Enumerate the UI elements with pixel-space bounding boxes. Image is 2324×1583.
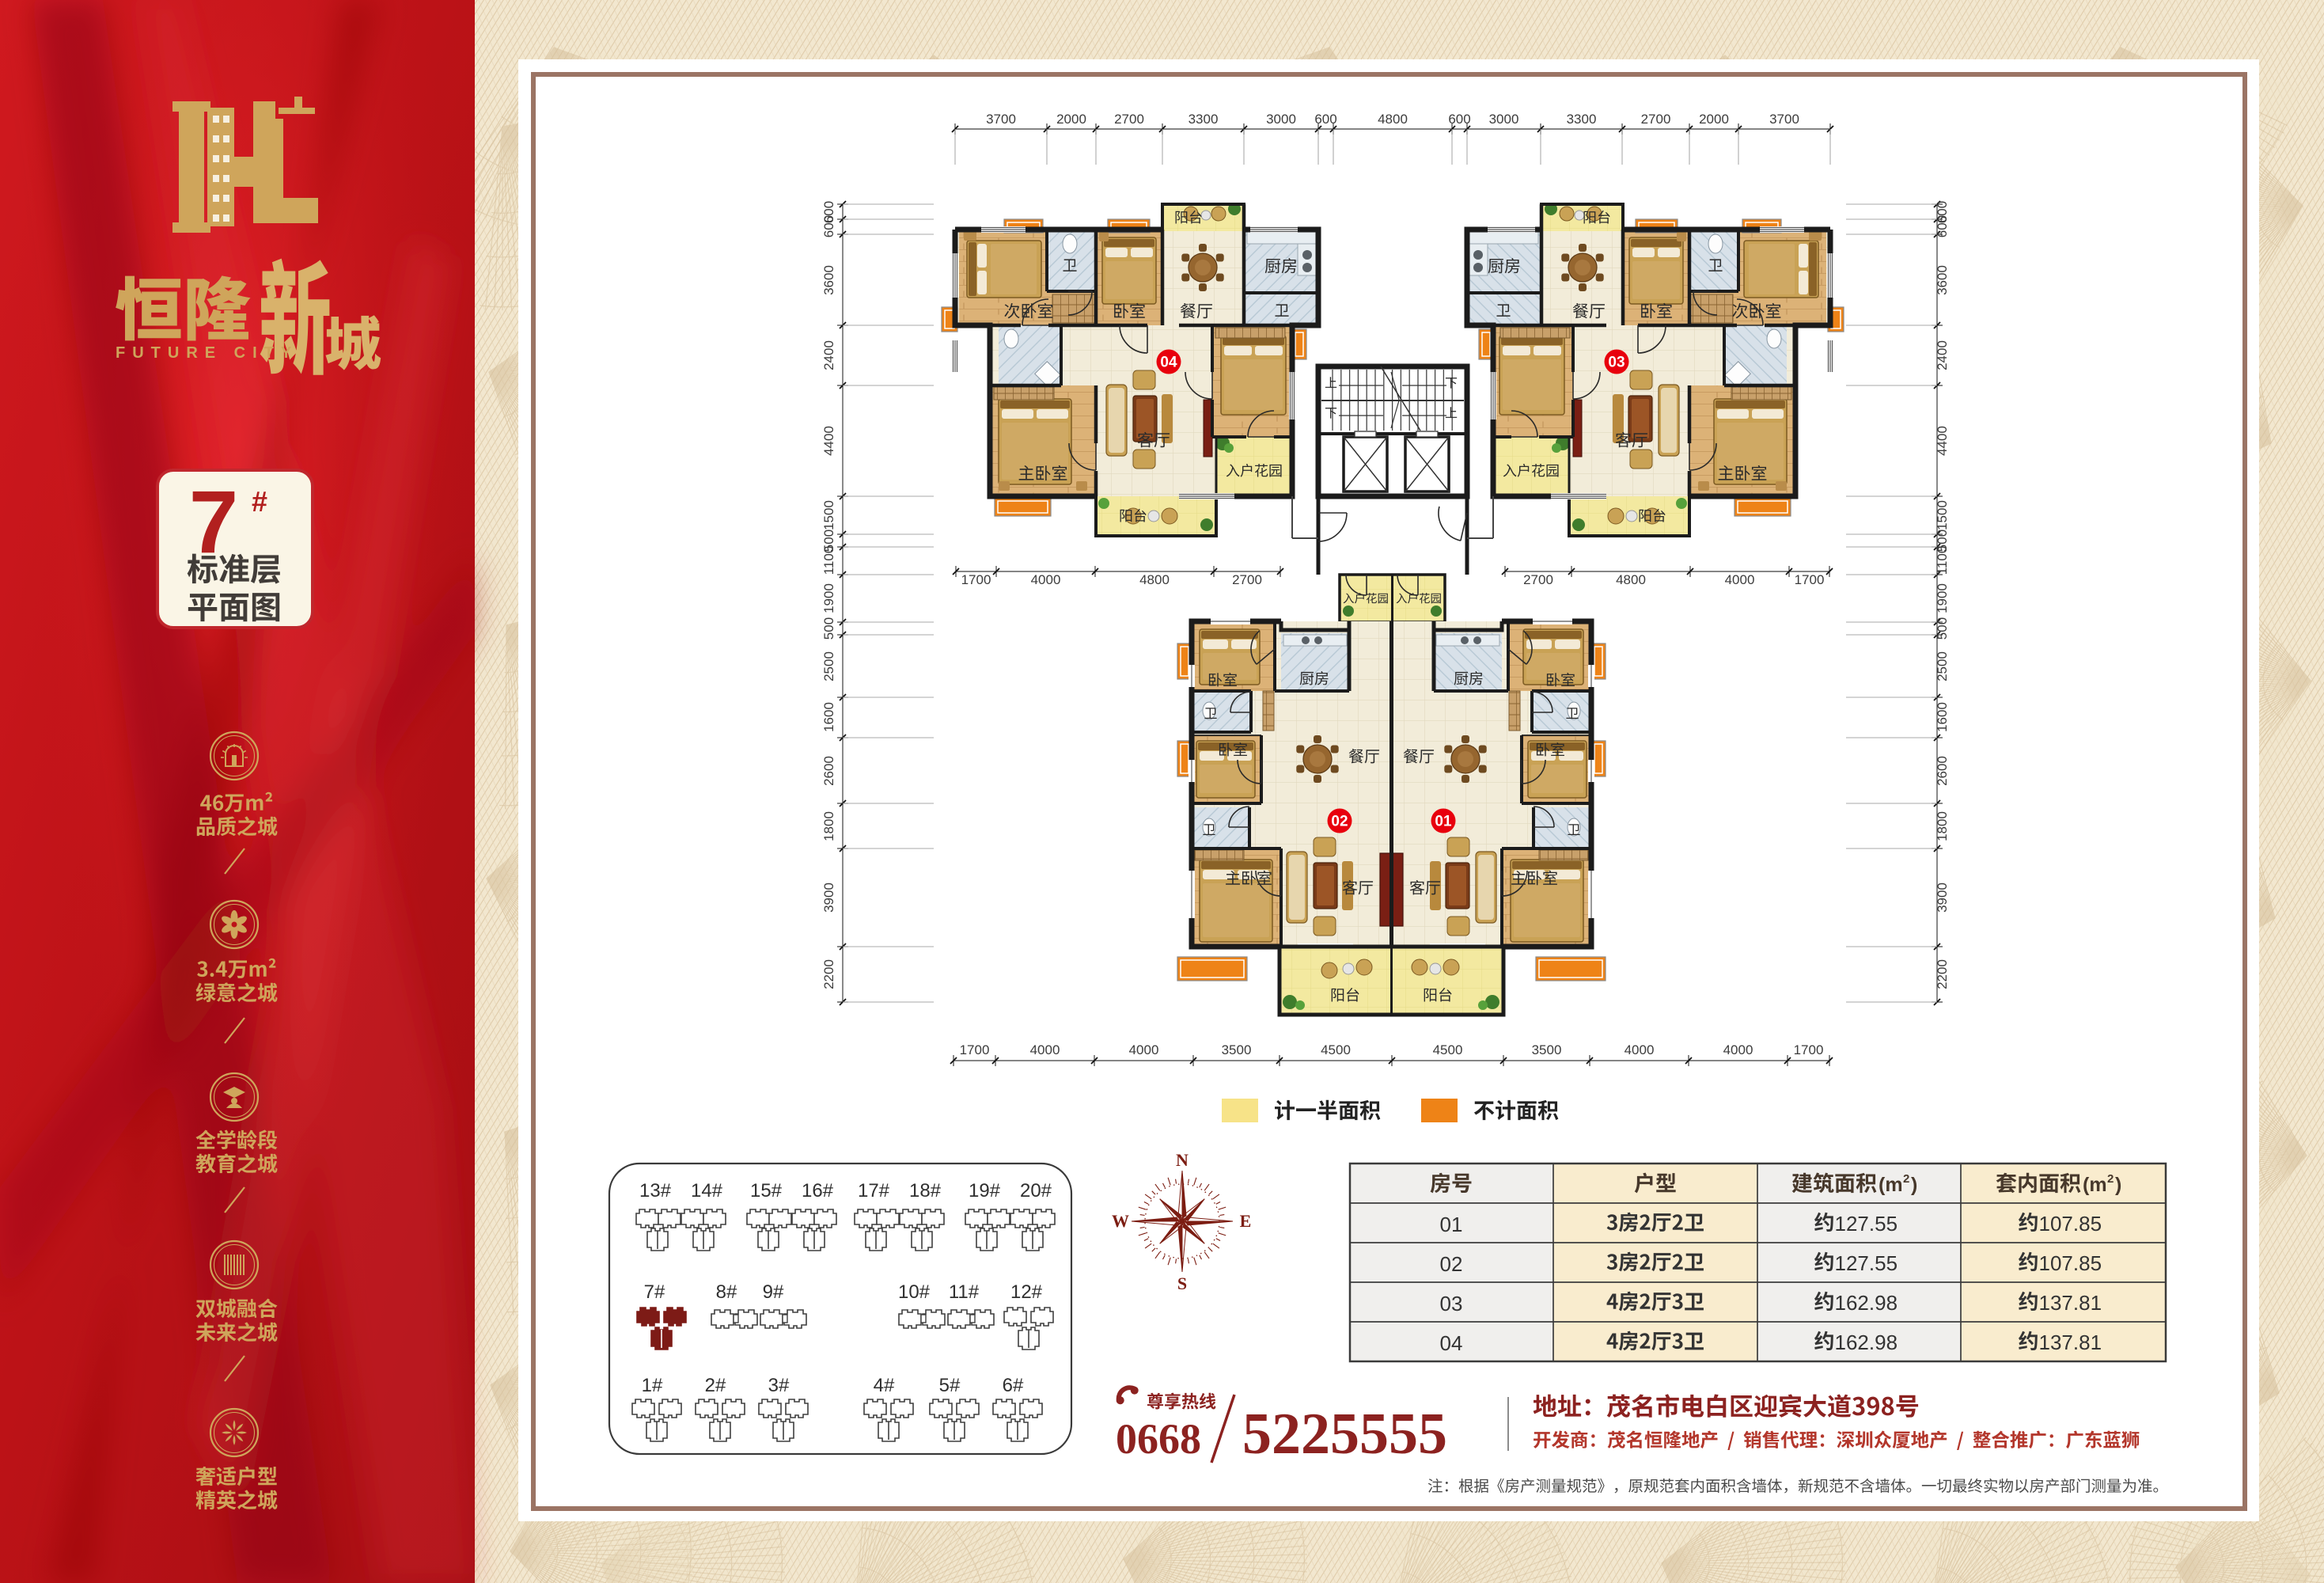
svg-text:11#: 11#	[949, 1281, 980, 1303]
svg-text:8#: 8#	[716, 1281, 737, 1303]
svg-text:4800: 4800	[1616, 572, 1646, 587]
svg-text:137.81: 137.81	[2039, 1291, 2102, 1315]
svg-text:1700: 1700	[1795, 572, 1825, 587]
svg-text:107.85: 107.85	[2039, 1212, 2102, 1236]
svg-text:7#: 7#	[644, 1281, 665, 1303]
svg-text:(m: (m	[2083, 1174, 2107, 1196]
svg-text:18#: 18#	[909, 1180, 942, 1201]
svg-text:162.98: 162.98	[1835, 1291, 1898, 1315]
svg-text:3500: 3500	[1222, 1042, 1252, 1057]
svg-text:1700: 1700	[961, 572, 991, 587]
svg-text:1100: 1100	[821, 546, 836, 575]
svg-text:17#: 17#	[858, 1180, 890, 1201]
svg-text:N: N	[1176, 1150, 1189, 1170]
svg-text:1500: 1500	[1935, 500, 1950, 530]
svg-text:2500: 2500	[1935, 651, 1950, 681]
svg-text:3000: 3000	[1489, 112, 1519, 127]
svg-text:(m: (m	[1879, 1174, 1903, 1196]
svg-text:20#: 20#	[1020, 1180, 1052, 1201]
svg-text:4400: 4400	[1935, 426, 1950, 456]
svg-text:2: 2	[2107, 1172, 2114, 1186]
svg-text:15#: 15#	[750, 1180, 783, 1201]
svg-text:2: 2	[1903, 1172, 1909, 1186]
svg-text:4500: 4500	[1321, 1042, 1351, 1057]
svg-text:0668: 0668	[1116, 1415, 1201, 1463]
svg-text:): )	[2115, 1174, 2121, 1196]
svg-text:2200: 2200	[1935, 959, 1950, 989]
svg-text:2400: 2400	[1935, 340, 1950, 370]
svg-text:1500: 1500	[821, 500, 836, 530]
svg-text:4#: 4#	[874, 1375, 895, 1396]
svg-text:4000: 4000	[1031, 572, 1061, 587]
svg-text:2200: 2200	[821, 959, 836, 989]
svg-text:4000: 4000	[1129, 1042, 1159, 1057]
svg-text:03: 03	[1440, 1292, 1463, 1315]
svg-text:13#: 13#	[639, 1180, 672, 1201]
svg-text:600: 600	[1314, 112, 1336, 127]
svg-text:1900: 1900	[821, 583, 836, 613]
svg-text:4800: 4800	[1139, 572, 1170, 587]
svg-text:4400: 4400	[821, 426, 836, 456]
svg-text:16#: 16#	[802, 1180, 834, 1201]
svg-text:500: 500	[821, 617, 836, 640]
svg-text:01: 01	[1440, 1213, 1463, 1236]
svg-text:5225555: 5225555	[1242, 1402, 1447, 1467]
svg-text:600: 600	[1935, 215, 1950, 237]
svg-text:3700: 3700	[986, 112, 1016, 127]
svg-text:W: W	[1112, 1211, 1129, 1231]
svg-text:#: #	[252, 485, 267, 518]
svg-text:127.55: 127.55	[1835, 1251, 1898, 1275]
svg-text:4000: 4000	[1723, 1042, 1753, 1057]
svg-text:127.55: 127.55	[1835, 1212, 1898, 1236]
svg-text:3600: 3600	[821, 265, 836, 295]
svg-text:E: E	[1240, 1211, 1252, 1231]
svg-text:3900: 3900	[821, 883, 836, 913]
svg-text:4000: 4000	[1625, 1042, 1655, 1057]
svg-text:1100: 1100	[1935, 546, 1950, 575]
svg-text:1600: 1600	[1935, 702, 1950, 732]
svg-text:2500: 2500	[821, 651, 836, 681]
svg-text:1700: 1700	[960, 1042, 990, 1057]
svg-text:1#: 1#	[642, 1375, 663, 1396]
svg-text:600: 600	[1448, 112, 1470, 127]
svg-text:2700: 2700	[1114, 112, 1144, 127]
svg-text:3#: 3#	[768, 1375, 790, 1396]
svg-text:4800: 4800	[1378, 112, 1408, 127]
svg-text:10#: 10#	[898, 1281, 931, 1303]
svg-text:3900: 3900	[1935, 883, 1950, 913]
svg-text:5#: 5#	[939, 1375, 961, 1396]
svg-text:1800: 1800	[1935, 811, 1950, 841]
svg-text:4500: 4500	[1433, 1042, 1463, 1057]
svg-text:3300: 3300	[1189, 112, 1219, 127]
svg-text:04: 04	[1440, 1331, 1463, 1355]
svg-text:2600: 2600	[821, 756, 836, 786]
svg-text:): )	[1911, 1174, 1917, 1196]
svg-text:4000: 4000	[1725, 572, 1755, 587]
svg-text:2700: 2700	[1523, 572, 1553, 587]
svg-text:12#: 12#	[1010, 1281, 1043, 1303]
svg-text:01: 01	[1435, 814, 1452, 830]
svg-text:1900: 1900	[1935, 583, 1950, 613]
svg-text:19#: 19#	[969, 1180, 1001, 1201]
svg-text:107.85: 107.85	[2039, 1251, 2102, 1275]
svg-text:14#: 14#	[691, 1180, 723, 1201]
svg-text:02: 02	[1331, 814, 1348, 830]
svg-text:600: 600	[821, 215, 836, 237]
svg-text:2#: 2#	[705, 1375, 726, 1396]
svg-text:2000: 2000	[1699, 112, 1729, 127]
svg-text:3600: 3600	[1935, 265, 1950, 295]
svg-text:1600: 1600	[821, 702, 836, 732]
svg-text:1800: 1800	[821, 811, 836, 841]
svg-text:3500: 3500	[1532, 1042, 1562, 1057]
svg-text:2700: 2700	[1641, 112, 1671, 127]
svg-text:162.98: 162.98	[1835, 1331, 1898, 1354]
svg-text:1700: 1700	[1794, 1042, 1824, 1057]
svg-text:6#: 6#	[1003, 1375, 1024, 1396]
svg-text:04: 04	[1160, 355, 1177, 371]
svg-text:2600: 2600	[1935, 756, 1950, 786]
svg-text:2400: 2400	[821, 340, 836, 370]
svg-text:2000: 2000	[1056, 112, 1086, 127]
svg-text:2700: 2700	[1232, 572, 1262, 587]
svg-text:02: 02	[1440, 1252, 1463, 1276]
svg-text:03: 03	[1608, 355, 1625, 371]
svg-text:3700: 3700	[1769, 112, 1799, 127]
svg-text:FUTURE CITY: FUTURE CITY	[116, 344, 298, 362]
svg-text:3300: 3300	[1567, 112, 1597, 127]
svg-text:4000: 4000	[1030, 1042, 1060, 1057]
svg-text:137.81: 137.81	[2039, 1331, 2102, 1354]
svg-text:S: S	[1177, 1274, 1187, 1293]
svg-text:9#: 9#	[763, 1281, 784, 1303]
svg-text:3000: 3000	[1266, 112, 1296, 127]
svg-text:500: 500	[1935, 617, 1950, 640]
